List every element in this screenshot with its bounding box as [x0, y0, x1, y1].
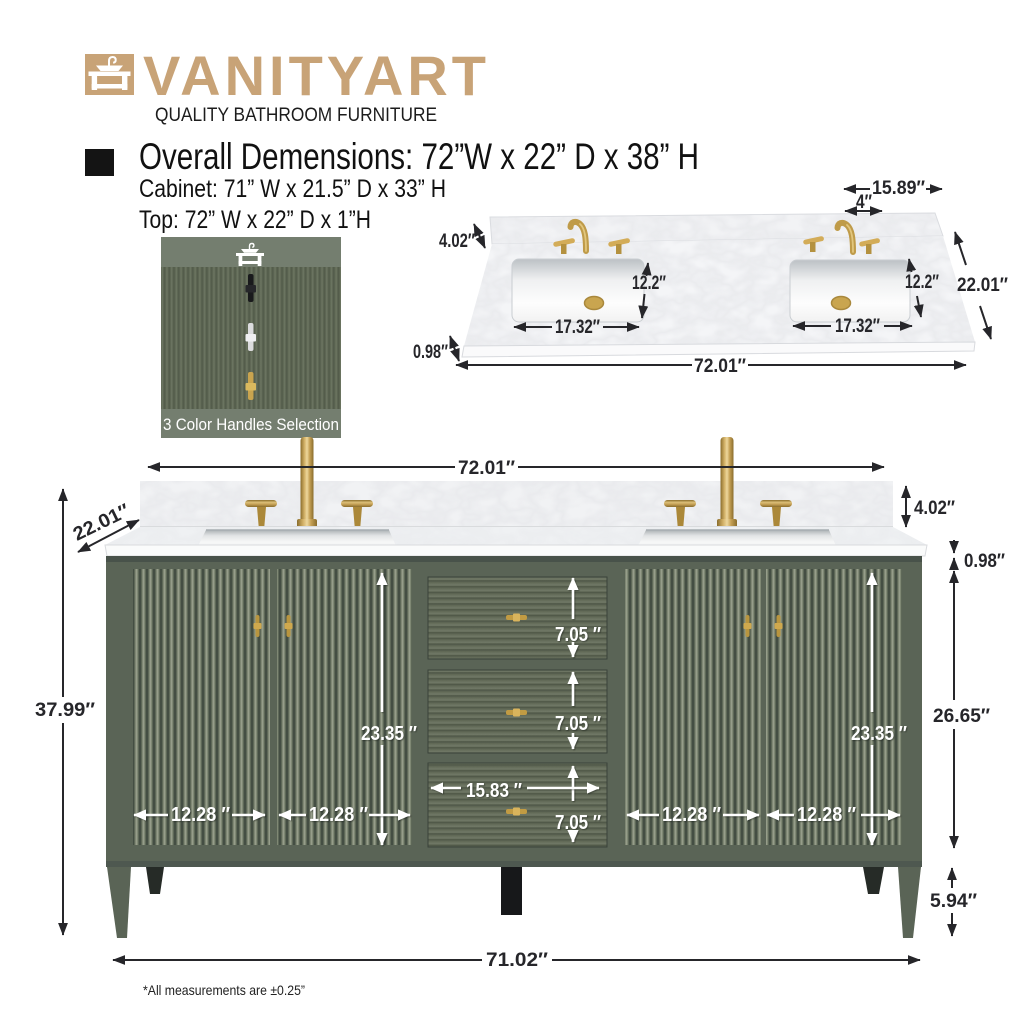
svg-text:VANITYART: VANITYART — [143, 44, 490, 107]
svg-text:3 Color Handles Selection: 3 Color Handles Selection — [163, 416, 339, 434]
svg-text:12.28 ″: 12.28 ″ — [662, 804, 721, 826]
svg-text:Cabinet: 71” W x 21.5” D x 33”: Cabinet: 71” W x 21.5” D x 33” H — [139, 175, 446, 203]
svg-text:0.98″: 0.98″ — [413, 342, 448, 363]
svg-text:71.02″: 71.02″ — [486, 950, 548, 971]
svg-text:22.01″: 22.01″ — [957, 275, 1008, 296]
svg-text:15.89″: 15.89″ — [872, 178, 925, 199]
svg-text:12.28 ″: 12.28 ″ — [309, 804, 368, 826]
svg-text:Overall Demensions: 72”W x 22”: Overall Demensions: 72”W x 22” D x 38” H — [139, 136, 699, 177]
svg-text:0.98″: 0.98″ — [964, 551, 1005, 572]
svg-text:12.28 ″: 12.28 ″ — [171, 804, 230, 826]
svg-text:12.2″: 12.2″ — [905, 272, 939, 293]
svg-text:26.65″: 26.65″ — [933, 706, 990, 727]
svg-text:15.83 ″: 15.83 ″ — [466, 780, 522, 802]
svg-text:7.05 ″: 7.05 ″ — [555, 812, 601, 834]
svg-text:*All measurements are ±0.25”: *All measurements are ±0.25” — [143, 982, 305, 998]
svg-text:QUALITY BATHROOM FURNITURE: QUALITY BATHROOM FURNITURE — [155, 105, 437, 126]
svg-text:37.99″: 37.99″ — [35, 700, 95, 721]
svg-text:23.35 ″: 23.35 ″ — [851, 723, 907, 745]
svg-text:12.28 ″: 12.28 ″ — [797, 804, 856, 826]
svg-text:4.02″: 4.02″ — [439, 231, 475, 252]
svg-text:23.35 ″: 23.35 ″ — [361, 723, 417, 745]
svg-text:4.02″: 4.02″ — [914, 498, 955, 519]
svg-text:Top: 72” W x 22” D x 1”H: Top: 72” W x 22” D x 1”H — [139, 206, 371, 234]
svg-text:7.05 ″: 7.05 ″ — [555, 624, 601, 646]
svg-text:12.2″: 12.2″ — [632, 273, 666, 294]
svg-text:4″: 4″ — [856, 192, 872, 213]
svg-text:7.05 ″: 7.05 ″ — [555, 713, 601, 735]
svg-text:5.94″: 5.94″ — [930, 891, 977, 912]
svg-text:17.32″: 17.32″ — [555, 317, 600, 338]
svg-text:17.32″: 17.32″ — [835, 316, 880, 337]
svg-text:72.01″: 72.01″ — [458, 458, 515, 479]
svg-text:72.01″: 72.01″ — [694, 356, 746, 377]
